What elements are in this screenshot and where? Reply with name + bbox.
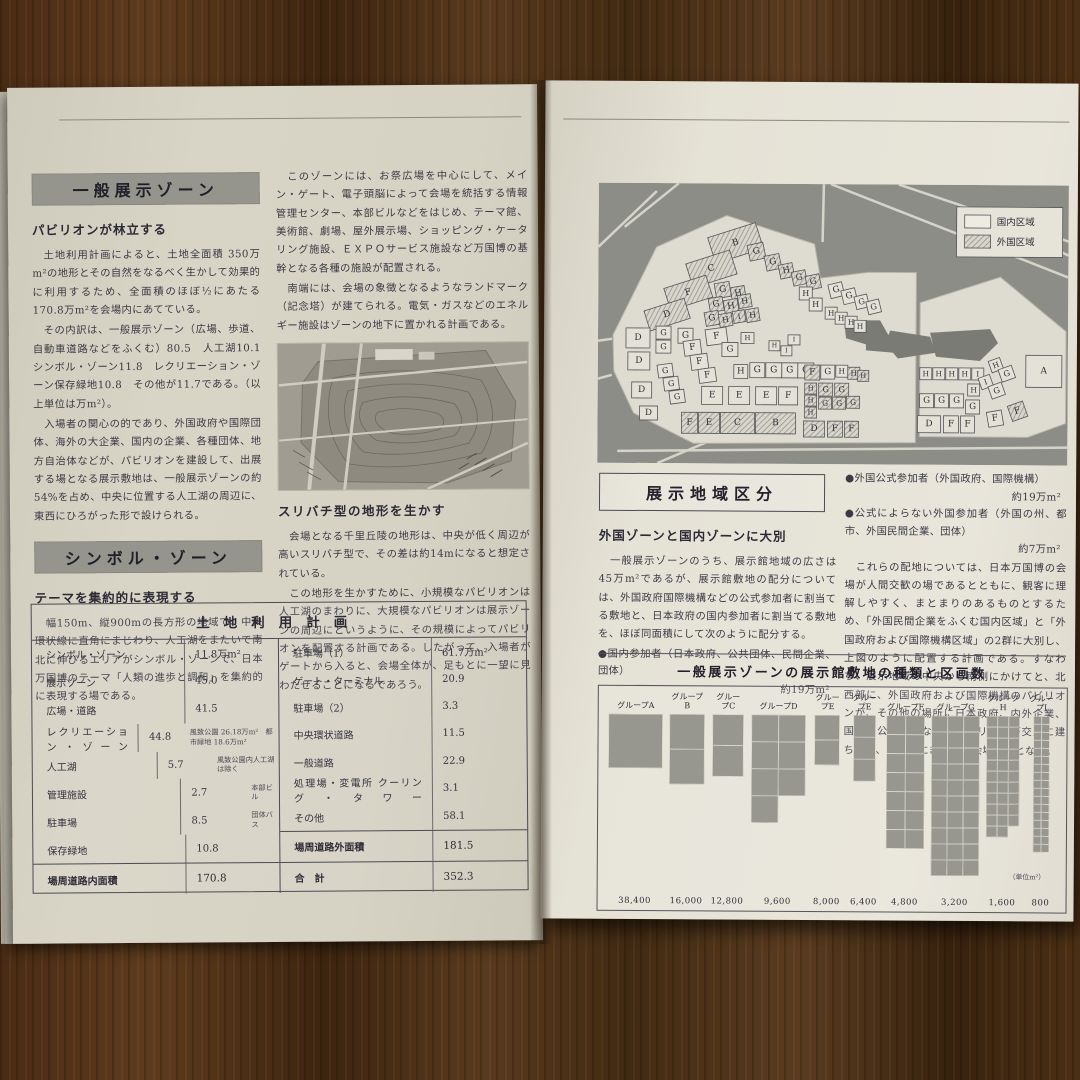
svg-text:G: G [953,396,960,406]
chart-group-blocks [751,715,806,823]
row-value: 8.5 [181,815,247,826]
svg-text:H: H [737,367,745,377]
row-value: 58.1 [433,810,501,821]
parcel-square [1008,717,1019,728]
row-value: 3.3 [432,700,500,711]
svg-text:H: H [851,369,858,378]
paragraph: このゾーンには、お祭広場を中心にして、メイン・ゲート、電子頭脳によって会場を統括… [276,166,529,278]
chart-group-value: 16,000 [670,896,703,906]
parcel-square [931,732,947,748]
row-value: 61.7万m² [432,644,500,659]
site-plan-map-graphic: BCFDGGHGGGHGHHGHIHHHGGGGHHHHHIHIDGGGFGFF… [597,183,1069,466]
parcel-square [963,716,979,732]
parcel-square [1033,765,1041,773]
parcel-square [963,764,979,780]
svg-text:H: H [812,300,819,309]
svg-text:D: D [925,419,932,429]
parcel-square [1008,816,1019,827]
paragraph: 土地利用計画によると、土地全面積 350万m²の地形とその自然をなるべく生かして… [32,245,261,320]
svg-text:H: H [808,384,814,392]
parcel-square [1008,750,1019,761]
svg-text:H: H [808,396,814,404]
parcel-square [1041,757,1049,765]
parcel-square [1033,725,1041,733]
row-value: 20.9 [432,673,500,684]
parcel-square [905,716,924,735]
parcel-square [931,748,947,764]
parcel-square [997,794,1008,805]
parcel-square [1033,757,1041,765]
parcel-square [905,830,924,849]
svg-text:H: H [962,369,969,378]
parcel-square [947,812,963,828]
site-plan-map: BCFDGGHGGGHGHHGHIHHHGGGGHHHHHIHIDGGGFGFF… [597,183,1069,466]
svg-text:G: G [682,331,689,341]
parcel-square [931,796,947,812]
total-label: 場周道路外面積 [280,831,433,862]
bullet-foreign: ●外国公式参加者（外国政府、国際機構）約19万m² [845,470,1067,506]
parcel-square [986,826,997,837]
parcel-square [886,753,905,772]
total-value: 352.3 [433,871,473,883]
bullet-amount: 約7万m² [845,540,1067,559]
parcel-square [669,750,704,785]
svg-text:G: G [969,402,976,412]
parcel-square [931,844,947,860]
parcel-square [1041,725,1049,733]
chart-group-blocks [608,714,662,768]
parcel-square [1041,781,1049,789]
total-value: 170.8 [187,872,227,884]
svg-text:H: H [772,342,778,349]
svg-text:F: F [948,419,954,429]
parcel-square [751,715,778,742]
chart-group-value: 800 [1032,898,1050,908]
table-row: 駐車場（1）61.7万m² [279,637,526,666]
svg-text:E: E [709,390,716,400]
chart-group-blocks [986,716,1020,837]
parcel-square [1033,749,1041,757]
row-value: 44.8 [139,732,186,743]
parcel-square [1033,733,1041,741]
chart-group-value: 1,600 [988,898,1015,908]
row-label: その他 [280,802,433,830]
parcel-square [669,715,704,750]
section-heading-general-exhibit-zone: 一般展示ゾーン [32,172,260,206]
svg-text:外国区域: 外国区域 [997,236,1036,248]
svg-text:H: H [808,408,814,416]
chart-group-value: 38,400 [618,896,651,906]
parcel-square [1034,717,1042,725]
row-note: 団体バス [247,810,279,830]
table-row: 処理場・変電所 クーリング・タワー3.1 [280,774,527,803]
parcel-square [963,780,979,796]
chart-group-value: 3,200 [941,898,968,908]
total-label: 合 計 [280,862,433,893]
chart-group-value: 8,000 [813,897,840,907]
parcel-square [751,796,778,823]
parcel-square [815,740,840,765]
parcel-square [997,728,1008,739]
svg-text:E: E [706,418,713,428]
parcel-square [905,811,924,830]
land-use-table-title: 土地利用計画 [32,601,526,640]
chart-group-blocks [815,715,840,765]
parcel-square [1033,781,1041,789]
parcel-square [815,715,840,740]
subhead-foreign-domestic-zones: 外国ゾーンと国内ゾーンに大別 [599,525,837,545]
parcel-square [1033,821,1041,829]
parcel-square [986,804,997,815]
parcel-square [986,738,997,749]
table-row: 駐車場（2）3.3 [279,692,526,721]
parcel-square [997,739,1008,750]
land-use-left-half: シンボル・ゾーン11.8万m²展示ゾーン45.0広場・道路41.5レクリエーショ… [32,639,281,895]
svg-text:G: G [786,365,793,375]
chart-group-blocks [853,716,875,782]
svg-text:D: D [634,333,641,343]
chart-group-label: グループC [713,692,744,711]
svg-text:H: H [744,334,750,342]
parcel-square [853,760,875,782]
parcel-square [947,844,963,860]
chart-group-label: グループD [752,693,806,711]
paragraph: 一般展示ゾーンのうち、展示館地域の広さは45万m²であるが、展示館敷地の配分につ… [598,552,837,645]
parcel-square [1033,813,1041,821]
row-value: 11.8万m² [185,646,253,661]
row-label: 一般道路 [280,748,433,776]
parcel-square [986,749,997,760]
parcel-square [1008,772,1019,783]
bullet-foreign: ●公式によらない外国参加者（外国の州、都市、外国民間企業、団体）約7万m² [845,505,1067,559]
chart-group: グループE8,000 [811,693,842,907]
chart-group-blocks [886,715,925,848]
chart-group-label: グループA [609,692,663,710]
table-row: シンボル・ゾーン11.8万m² [32,639,278,669]
paragraph: 会場となる千里丘陵の地形は、中央が低く周辺が高いスリバチ型で、その差は約14mに… [278,526,530,583]
svg-text:A: A [1040,366,1048,376]
parcel-square [1041,789,1049,797]
parcel-square [986,815,997,826]
parcel-square [997,783,1008,794]
svg-text:G: G [850,398,856,407]
parcel-square [886,734,905,753]
parcel-square [1008,761,1019,772]
svg-text:H: H [949,369,956,378]
parcel-square [905,735,924,754]
chart-group-value: 6,400 [850,897,877,907]
parcel-square [963,812,979,828]
parcel-square [1041,749,1049,757]
parcel-square [853,716,875,738]
row-note: 風致公園 26.18万m² 都市緑地 18.6万m² [186,727,279,747]
parcel-square [1008,805,1019,816]
table-total-row: 場周道路外面積181.5 [280,829,527,862]
parcel-square [963,844,979,860]
row-note: 本部ビル [247,783,279,803]
chart-group: グループD9,600 [750,693,805,907]
parcel-square [947,716,963,732]
book-spine [530,80,552,944]
parcel-square [778,715,805,742]
svg-text:F: F [696,356,704,367]
table-row: 保存緑地10.8 [33,834,279,864]
parcel-square [963,860,979,876]
parcel-square [712,715,743,746]
parcel-square [886,810,905,829]
svg-text:H: H [740,296,748,306]
svg-text:F: F [848,424,854,434]
chart-unit-note: （単位m²） [1009,871,1045,881]
paragraph: その内訳は、一般展示ゾーン（広場、歩道、自動車道路などをふくむ）80.5 人工湖… [33,320,262,413]
parcel-square [1041,765,1049,773]
chart-group-label: グループG [932,694,980,712]
parcel-square [1033,789,1041,797]
total-value: 181.5 [433,840,473,852]
svg-text:F: F [832,424,838,434]
row-label: 保存緑地 [33,835,186,864]
svg-text:G: G [754,365,761,375]
parcel-square [1033,773,1041,781]
svg-text:H: H [936,369,943,378]
chart-group-blocks [931,716,980,876]
svg-text:G: G [938,396,945,406]
table-row: 管理施設2.7本部ビル [33,778,279,808]
parcel-square [1041,805,1049,813]
row-label: 広場・道路 [32,695,185,724]
section-heading-exhibit-area-division: 展示地域区分 [599,473,825,512]
table-row: ゲート・ターミナル20.9 [279,665,526,694]
row-value: 5.7 [158,759,213,770]
svg-text:F: F [809,367,815,377]
right-page-paragraphs: 一般展示ゾーンのうち、展示館地域の広さは45万m²であるが、展示館敷地の配分につ… [598,552,837,645]
parcel-square [986,760,997,771]
parcel-square [997,816,1008,827]
chart-group: グループB16,000 [669,692,705,906]
table-row: 駐車場8.5団体バス [33,806,279,836]
parcel-square [931,812,947,828]
svg-text:F: F [689,342,697,353]
table-row: 一般道路22.9 [280,747,527,776]
chart-group-blocks [669,715,704,785]
parcel-square [947,748,963,764]
photo-caption: スリバチ型の地形を生かす [278,499,530,520]
svg-text:H: H [860,372,866,380]
chart-group: グループE6,400 [848,693,879,907]
parcel-square [712,746,743,777]
parcel-square [1033,797,1041,805]
svg-text:G: G [673,392,681,402]
parcel-square [947,732,963,748]
bullets-foreign-participants: ●外国公式参加者（外国政府、国際機構）約19万m²●公式によらない外国参加者（外… [845,470,1068,559]
svg-text:G: G [660,342,666,351]
land-use-table-body: シンボル・ゾーン11.8万m²展示ゾーン45.0広場・道路41.5レクリエーショ… [32,637,528,894]
svg-text:H: H [802,289,809,298]
chart-group-blocks [1033,717,1050,853]
chart-group-blocks [712,715,743,777]
paragraph: 入場者の関心の的であり、外国政府や国際団体、海外の大企業、国内の企業、各種団体、… [33,414,262,526]
parcel-square [1033,837,1041,845]
row-value: 2.7 [181,787,247,798]
chart-group: グループF4,800 [885,693,924,907]
svg-text:G: G [822,385,828,394]
svg-text:H: H [838,314,845,323]
right-page-top-rule [563,118,1069,122]
subhead-pavilions: パビリオンが林立する [32,218,260,239]
svg-text:D: D [638,385,645,395]
svg-text:H: H [721,315,729,325]
parcel-square [931,764,947,780]
svg-text:G: G [838,385,844,394]
chart-group-label: グループB [670,692,705,711]
parcel-square [963,732,979,748]
parcel-square [1008,783,1019,794]
parcel-square [931,860,947,876]
paragraph: 南端には、会場の象徴となるようなランドマーク（記念塔）が建てられる。電気・ガスな… [276,278,528,335]
total-label: 場周道路内面積 [33,864,186,895]
row-value: 11.5 [433,728,501,739]
svg-text:G: G [667,379,675,389]
row-value: 10.8 [186,843,254,854]
row-label: 展示ゾーン [32,668,185,697]
row-label: 処理場・変電所 クーリング・タワー [280,775,433,803]
parcel-square [778,769,805,796]
svg-text:H: H [857,322,864,331]
parcel-square [905,754,924,773]
section-paragraphs: 土地利用計画によると、土地全面積 350万m²の地形とその自然をなるべく生かして… [32,245,262,526]
row-value: 41.5 [185,703,253,714]
row-note: 風致公園内人工湖は除く [213,755,279,775]
parcel-square [931,828,947,844]
svg-text:E: E [763,391,770,401]
svg-text:I: I [976,370,979,379]
parcel-square [1033,845,1041,853]
svg-text:G: G [660,328,666,337]
parcel-square [1041,821,1049,829]
svg-text:F: F [964,419,970,429]
parcel-square [997,805,1008,816]
parcel-square [947,796,963,812]
row-label: 駐車場（2） [279,693,432,721]
parcel-square [886,829,905,848]
svg-text:G: G [662,366,670,376]
parcel-square [986,793,997,804]
left-page-top-rule [59,116,521,120]
parcel-square [1041,837,1049,845]
svg-text:H: H [828,309,835,318]
table-total-row: 場周道路内面積170.8 [33,862,279,895]
svg-text:D: D [635,356,642,366]
svg-text:G: G [824,367,831,377]
row-label: 管理施設 [33,779,182,808]
bullet-text: ●公式によらない外国参加者（外国の州、都市、外国民間企業、団体） [845,507,1067,537]
row-value: 3.1 [433,783,501,794]
row-value: 45.0 [185,675,253,686]
parcel-square [1033,741,1041,749]
svg-text:G: G [726,344,733,354]
parcel-square [947,764,963,780]
parcel-square [947,860,963,876]
parcel-square [905,773,924,792]
parcel-square [1041,797,1049,805]
svg-text:G: G [836,399,842,408]
table-row: その他58.1 [280,802,527,831]
parcel-square [1041,845,1049,853]
parcel-square [997,717,1008,728]
svg-text:国内区域: 国内区域 [997,216,1036,228]
parcel-square [778,742,805,769]
parcel-square [886,715,905,734]
svg-text:E: E [736,391,743,401]
parcel-square [997,761,1008,772]
parcel-square [853,738,875,760]
svg-text:G: G [923,396,930,406]
parcel-square [1008,728,1019,739]
svg-text:D: D [645,408,652,418]
parcel-square [1041,813,1049,821]
svg-text:G: G [822,399,828,408]
parcel-square [1033,805,1041,813]
parcel-square [1041,741,1049,749]
parcel-square [1008,794,1019,805]
land-use-table: 土地利用計画 シンボル・ゾーン11.8万m²展示ゾーン45.0広場・道路41.5… [31,600,529,893]
table-row: 中央環状道路11.5 [279,720,526,749]
parcel-square [1033,829,1041,837]
parcel-square [886,772,905,791]
table-row: 展示ゾーン45.0 [32,667,278,697]
left-page: 一般展示ゾーン パビリオンが林立する 土地利用計画によると、土地全面積 350万… [7,84,543,944]
parcel-square [986,771,997,782]
row-label: シンボル・ゾーン [32,640,185,669]
parcel-square [751,769,778,796]
row-label: 人工湖 [33,751,158,780]
svg-text:H: H [970,385,977,394]
row-label: 中央環状道路 [279,720,432,748]
parcel-square [986,716,997,727]
svg-text:F: F [713,331,721,342]
parcel-square [905,792,924,811]
middle-top-paragraphs: このゾーンには、お祭広場を中心にして、メイン・ゲート、電子頭脳によって会場を統括… [276,166,529,335]
parcel-square [931,780,947,796]
parcel-square [1041,773,1049,781]
parcel-square [931,716,947,732]
section-heading-symbol-zone: シンボル・ゾーン [34,540,262,574]
chart-group: グループG3,200 [930,694,979,908]
row-label: レクリエーション・ゾーン [32,724,139,753]
table-total-row: 合 計352.3 [280,860,527,893]
parcel-square [947,780,963,796]
row-value: 22.9 [433,755,501,766]
chart-group-label: グループE [813,693,843,712]
svg-text:H: H [748,310,756,320]
chart-group: グループC12,800 [711,692,745,906]
parcel-square [986,727,997,738]
bullet-amount: 約19万m² [845,488,1067,507]
table-row: 広場・道路41.5 [32,695,278,725]
terrain-model-photo [277,341,530,491]
row-label: 駐車場（1） [279,638,432,666]
row-label: 駐車場 [33,807,182,836]
chart-group-value: 12,800 [711,896,744,906]
table-row: レクリエーション・ゾーン44.8風致公園 26.18万m² 都市緑地 18.6万… [32,723,278,753]
parcel-square [963,796,979,812]
land-use-right-half: 駐車場（1）61.7万m²ゲート・ターミナル20.9駐車場（2）3.3中央環状道… [279,637,528,893]
parcel-square [963,828,979,844]
chart-group-label: グループE [850,693,880,712]
parcel-square [986,782,997,793]
svg-text:B: B [772,418,779,428]
parcel-square [997,750,1008,761]
